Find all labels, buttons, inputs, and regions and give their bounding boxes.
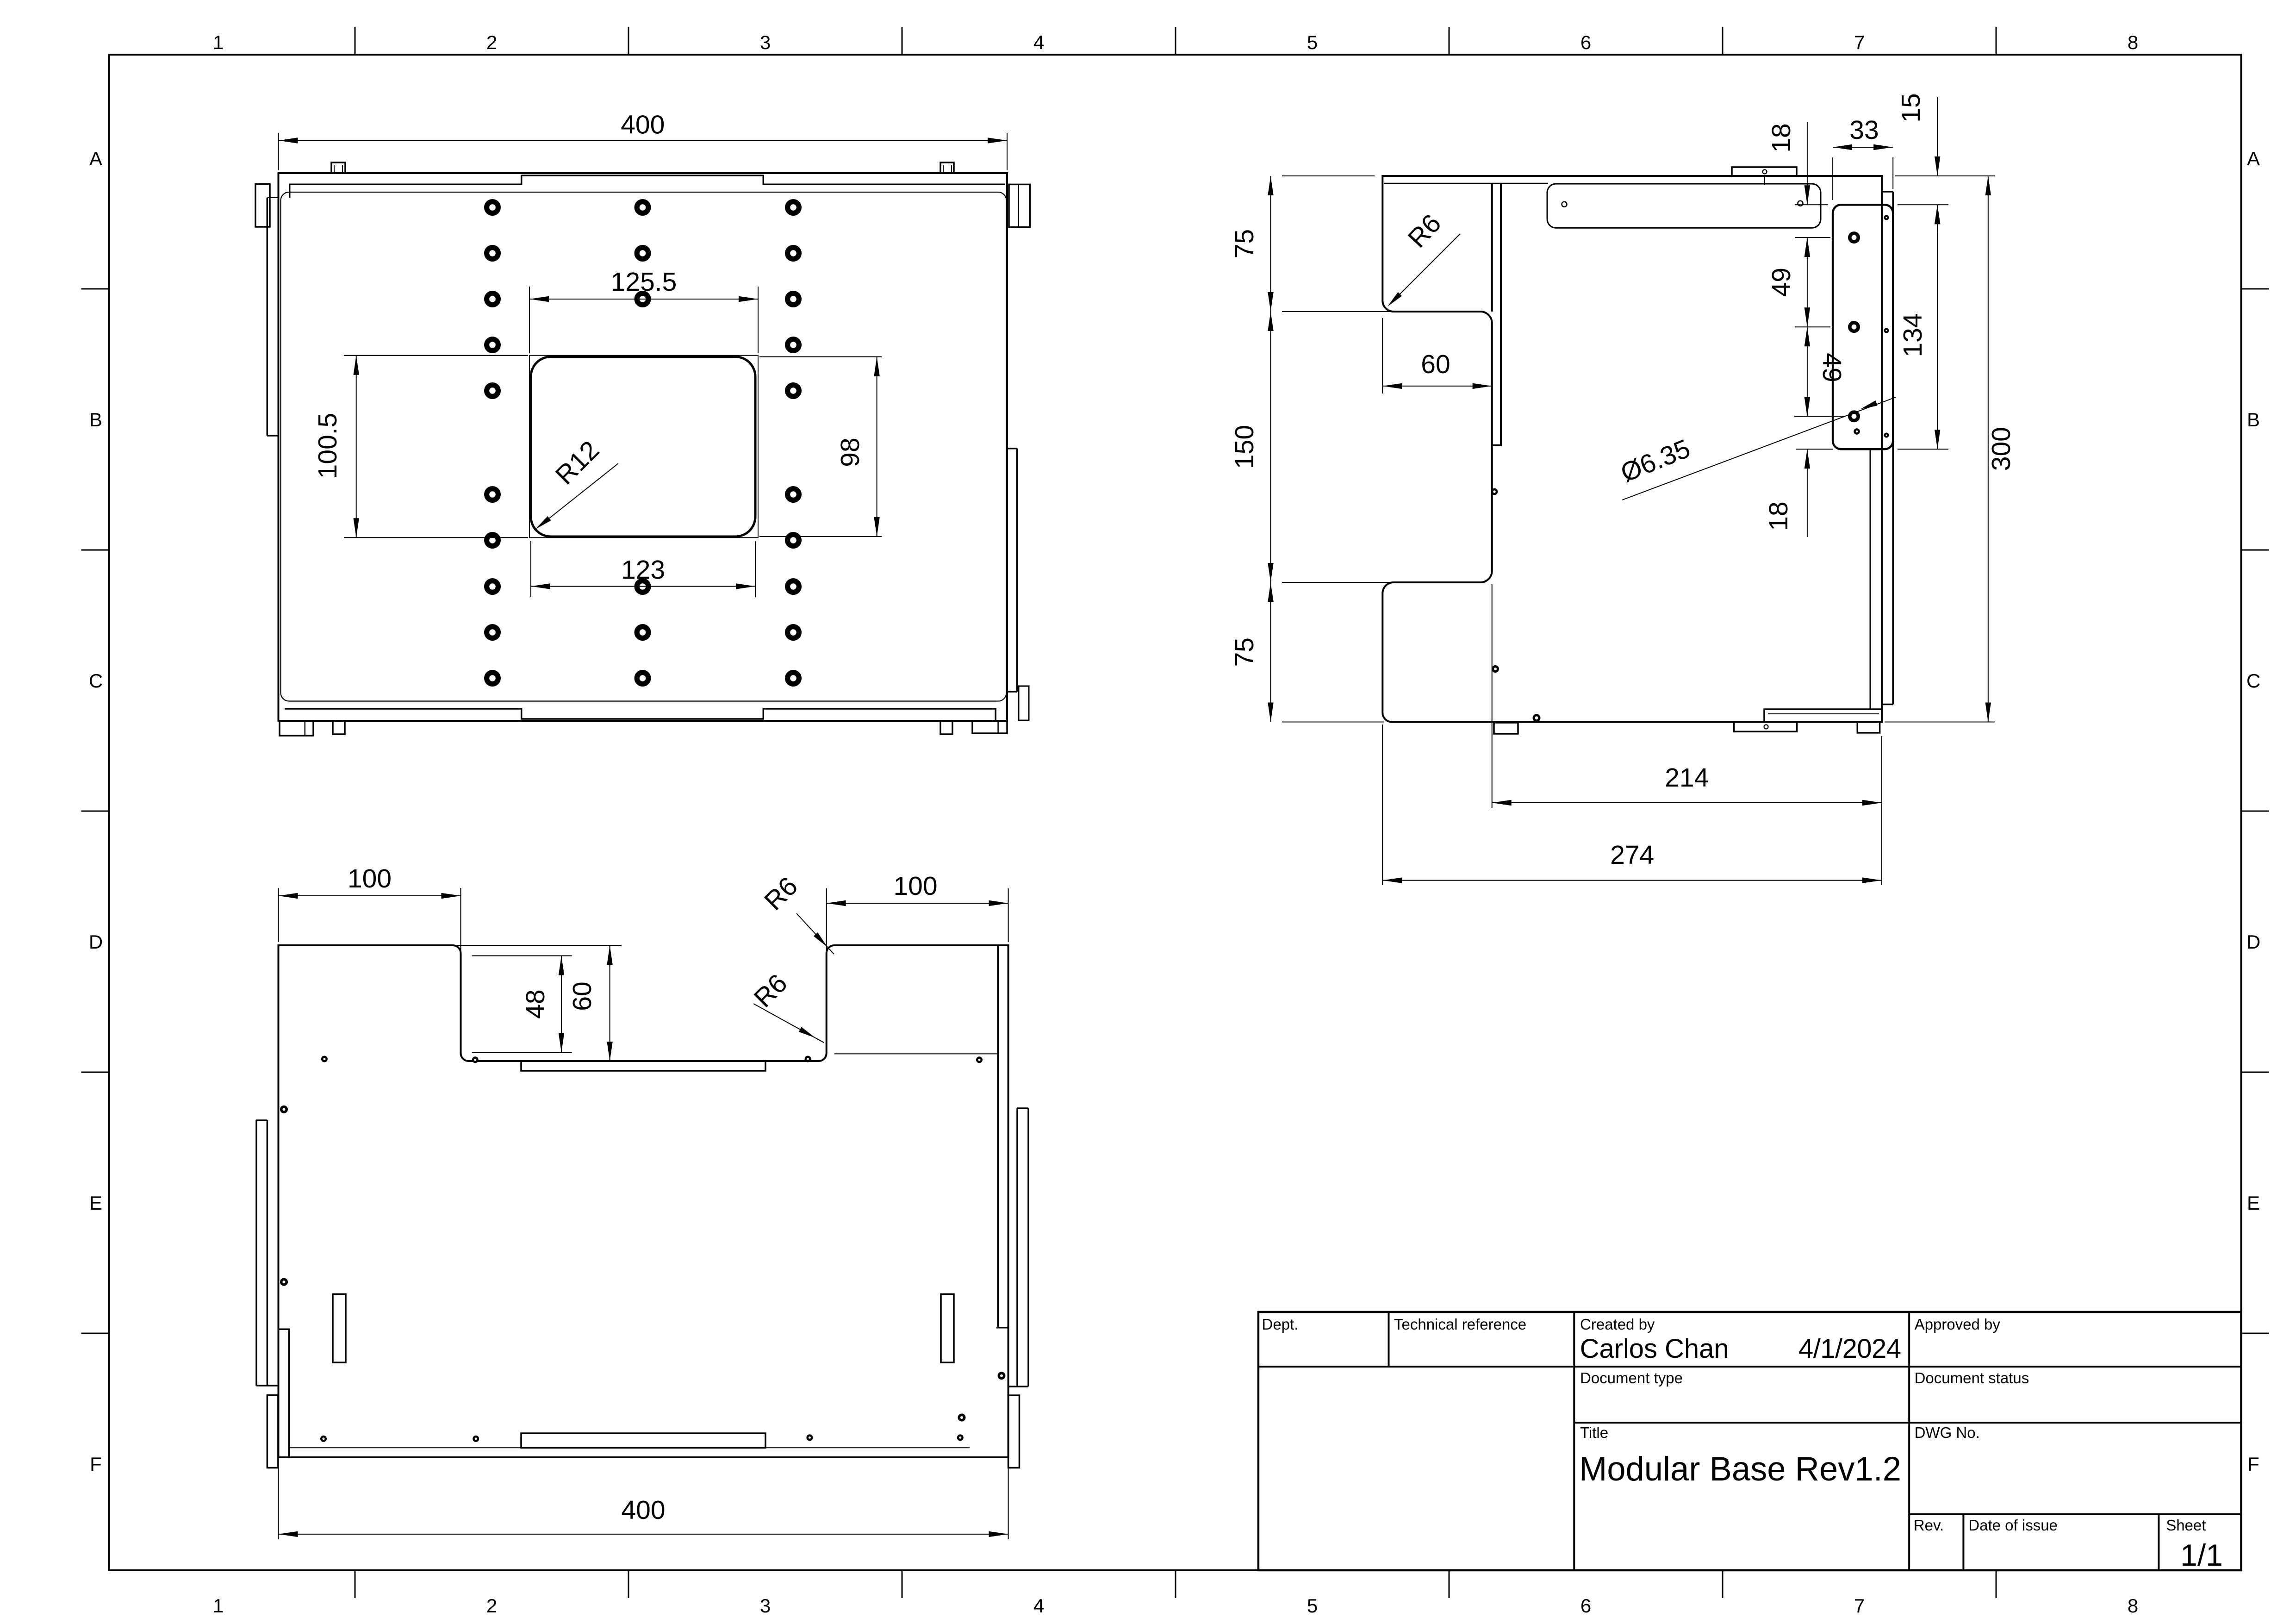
svg-text:123: 123 (621, 555, 665, 585)
svg-text:1/1: 1/1 (2180, 1538, 2223, 1572)
svg-text:Modular Base Rev1.2: Modular Base Rev1.2 (1579, 1450, 1901, 1488)
svg-text:D: D (2246, 931, 2260, 953)
svg-text:48: 48 (521, 989, 550, 1018)
svg-text:274: 274 (1610, 840, 1654, 870)
svg-text:100.5: 100.5 (313, 413, 342, 479)
svg-text:Document status: Document status (1915, 1369, 2029, 1387)
svg-text:F: F (2247, 1453, 2259, 1475)
svg-text:Created by: Created by (1580, 1316, 1655, 1333)
svg-text:60: 60 (567, 981, 597, 1011)
svg-text:214: 214 (1665, 763, 1709, 793)
svg-text:60: 60 (1421, 350, 1450, 379)
svg-text:Approved by: Approved by (1915, 1316, 2001, 1333)
svg-text:Title: Title (1580, 1424, 1608, 1441)
svg-text:Date of issue: Date of issue (1968, 1517, 2058, 1534)
svg-text:7: 7 (1854, 31, 1865, 53)
svg-text:Carlos Chan: Carlos Chan (1580, 1334, 1729, 1364)
svg-text:A: A (89, 148, 102, 169)
svg-text:49: 49 (1817, 353, 1847, 382)
svg-text:4/1/2024: 4/1/2024 (1798, 1334, 1901, 1364)
svg-text:2: 2 (486, 31, 497, 53)
svg-text:6: 6 (1580, 1595, 1591, 1617)
svg-text:400: 400 (621, 1495, 665, 1525)
svg-text:8: 8 (2128, 31, 2138, 53)
svg-text:E: E (89, 1192, 102, 1214)
svg-text:8: 8 (2128, 1595, 2138, 1617)
svg-text:75: 75 (1230, 229, 1259, 258)
svg-text:1: 1 (213, 31, 224, 53)
svg-text:5: 5 (1307, 1595, 1318, 1617)
svg-text:B: B (2247, 409, 2260, 431)
svg-text:49: 49 (1767, 268, 1796, 297)
svg-text:150: 150 (1230, 425, 1259, 469)
svg-text:125.5: 125.5 (611, 267, 677, 297)
svg-text:D: D (89, 931, 103, 953)
svg-text:Technical reference: Technical reference (1394, 1316, 1526, 1333)
svg-text:18: 18 (1767, 123, 1796, 152)
svg-text:Dept.: Dept. (1262, 1316, 1299, 1333)
svg-text:4: 4 (1033, 1595, 1044, 1617)
svg-text:15: 15 (1896, 93, 1926, 122)
svg-text:DWG No.: DWG No. (1915, 1424, 1980, 1441)
svg-text:400: 400 (621, 110, 665, 140)
svg-text:5: 5 (1307, 31, 1318, 53)
svg-text:A: A (2247, 148, 2260, 169)
svg-text:3: 3 (760, 31, 771, 53)
svg-text:33: 33 (1849, 115, 1879, 145)
svg-text:7: 7 (1854, 1595, 1865, 1617)
svg-text:F: F (90, 1453, 102, 1475)
svg-text:18: 18 (1764, 501, 1793, 531)
svg-text:1: 1 (213, 1595, 224, 1617)
svg-text:134: 134 (1898, 313, 1928, 357)
svg-text:Sheet: Sheet (2166, 1517, 2206, 1534)
svg-text:2: 2 (486, 1595, 497, 1617)
svg-text:98: 98 (835, 437, 865, 467)
svg-text:100: 100 (893, 871, 937, 901)
svg-text:C: C (89, 670, 103, 692)
svg-text:100: 100 (348, 864, 392, 893)
svg-text:300: 300 (1986, 427, 2016, 471)
svg-text:6: 6 (1580, 31, 1591, 53)
svg-text:75: 75 (1230, 637, 1259, 667)
svg-text:B: B (89, 409, 102, 431)
svg-text:3: 3 (760, 1595, 771, 1617)
svg-text:4: 4 (1033, 31, 1044, 53)
svg-text:C: C (2246, 670, 2260, 692)
svg-text:Rev.: Rev. (1914, 1517, 1944, 1534)
svg-text:Document type: Document type (1580, 1369, 1683, 1387)
svg-text:E: E (2247, 1192, 2260, 1214)
